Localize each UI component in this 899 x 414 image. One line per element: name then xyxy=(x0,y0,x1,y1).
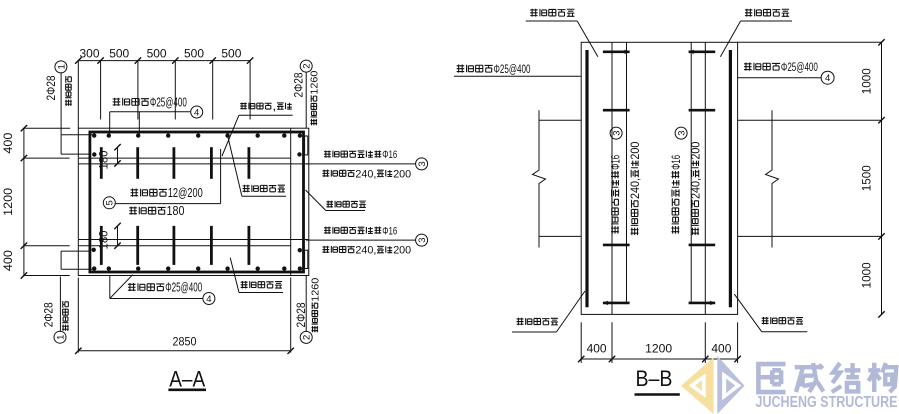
svg-text:180: 180 xyxy=(97,150,111,169)
svg-text:4: 4 xyxy=(825,73,830,84)
svg-text:5: 5 xyxy=(105,200,116,205)
svg-text:1: 1 xyxy=(55,335,66,340)
svg-text:200: 200 xyxy=(628,141,642,159)
svg-text:200: 200 xyxy=(393,168,411,180)
svg-text:500: 500 xyxy=(221,47,241,61)
svg-text:240,: 240, xyxy=(355,245,376,257)
svg-text:2Φ28: 2Φ28 xyxy=(292,72,306,97)
svg-text:3: 3 xyxy=(417,237,428,242)
svg-text:400: 400 xyxy=(1,250,15,271)
svg-text:3: 3 xyxy=(417,161,428,166)
svg-text:240,: 240, xyxy=(628,178,642,199)
svg-text:2Φ28: 2Φ28 xyxy=(44,75,58,100)
svg-text:Φ16: Φ16 xyxy=(669,155,683,170)
svg-text:400: 400 xyxy=(711,342,731,356)
svg-text:JUCHENG STRUCTURE: JUCHENG STRUCTURE xyxy=(756,394,898,411)
svg-text:500: 500 xyxy=(184,47,204,61)
svg-text:12@200: 12@200 xyxy=(168,186,203,200)
svg-text:1260: 1260 xyxy=(310,70,321,94)
svg-text:400: 400 xyxy=(587,342,607,356)
svg-text:500: 500 xyxy=(147,47,167,61)
svg-text:3: 3 xyxy=(612,130,623,135)
svg-text:Φ25@400: Φ25@400 xyxy=(165,281,202,295)
svg-text:2Φ28: 2Φ28 xyxy=(294,302,308,327)
svg-text:B–B: B–B xyxy=(636,366,673,391)
svg-text:240,: 240, xyxy=(355,168,376,180)
svg-text:300: 300 xyxy=(80,47,100,61)
svg-text:2Φ28: 2Φ28 xyxy=(42,302,56,327)
svg-text:4: 4 xyxy=(194,107,199,118)
svg-text:2850: 2850 xyxy=(173,335,197,349)
svg-text:1500: 1500 xyxy=(859,165,873,191)
svg-text:Φ25@400: Φ25@400 xyxy=(781,60,818,74)
svg-text:200: 200 xyxy=(393,245,411,257)
svg-text:1000: 1000 xyxy=(859,262,873,288)
svg-text:Φ16: Φ16 xyxy=(382,225,397,237)
svg-text:1200: 1200 xyxy=(1,188,15,216)
svg-text:1200: 1200 xyxy=(645,342,672,356)
svg-text:Φ25@400: Φ25@400 xyxy=(494,62,531,76)
svg-text:Φ16: Φ16 xyxy=(382,149,397,161)
svg-text:240,: 240, xyxy=(689,178,703,199)
svg-text:2: 2 xyxy=(302,63,313,68)
svg-text:500: 500 xyxy=(109,47,129,61)
svg-text:200: 200 xyxy=(689,141,703,159)
svg-text:4: 4 xyxy=(206,294,211,305)
svg-text:400: 400 xyxy=(1,132,15,153)
svg-text:180: 180 xyxy=(97,230,111,249)
svg-text:180: 180 xyxy=(167,204,185,218)
svg-text:3: 3 xyxy=(677,130,688,135)
svg-text:1: 1 xyxy=(56,64,67,69)
svg-text:A–A: A–A xyxy=(169,366,205,391)
svg-text:Φ16: Φ16 xyxy=(608,155,622,170)
svg-text:Φ25@400: Φ25@400 xyxy=(150,95,187,109)
svg-text:,: , xyxy=(272,101,276,113)
svg-text:1000: 1000 xyxy=(859,68,873,94)
svg-text:2: 2 xyxy=(302,335,313,340)
svg-text:1260: 1260 xyxy=(311,277,322,301)
